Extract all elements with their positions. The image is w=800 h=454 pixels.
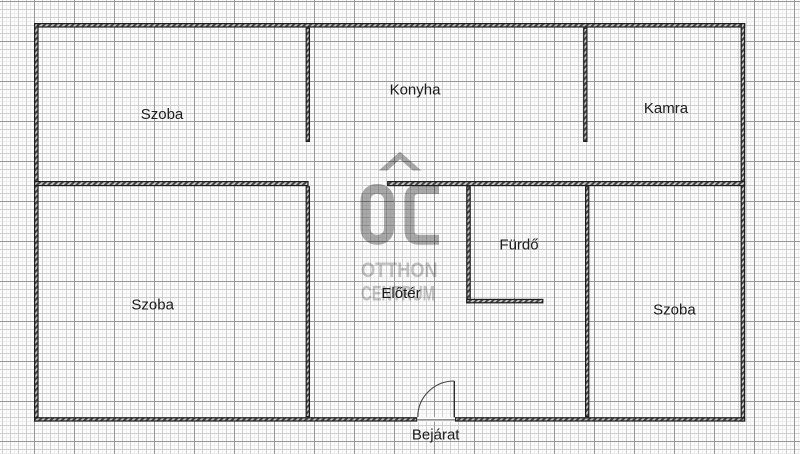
svg-text:Szoba: Szoba (131, 297, 174, 314)
svg-text:Előtér: Előtér (381, 285, 420, 302)
svg-text:Fürdő: Fürdő (499, 237, 538, 254)
svg-text:Konyha: Konyha (390, 82, 442, 99)
svg-text:Bejárat: Bejárat (412, 427, 460, 444)
svg-text:Szoba: Szoba (141, 106, 184, 123)
svg-text:Szoba: Szoba (653, 302, 696, 319)
svg-text:Kamra: Kamra (644, 100, 689, 117)
